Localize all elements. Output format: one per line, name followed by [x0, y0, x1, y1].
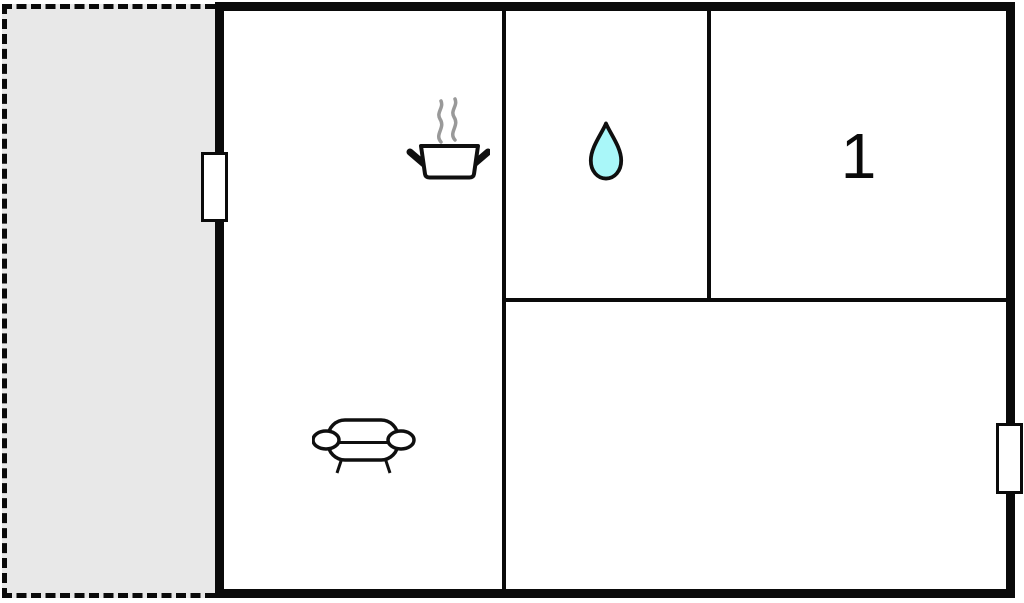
terrace-area: [2, 4, 215, 598]
steam-line-left: [439, 101, 442, 142]
water-drop-shape: [591, 123, 621, 178]
window-right-wall: [996, 423, 1023, 494]
sofa-armrest-left: [313, 431, 339, 449]
bedroom-number-label: 1: [841, 124, 877, 188]
water-drop-icon: [587, 120, 625, 182]
room-bottom-right: [506, 302, 1006, 589]
floor-plan: 1: [0, 0, 1024, 603]
window-left-wall: [201, 152, 228, 222]
sofa-icon: [312, 414, 416, 476]
room-bedroom-1: 1: [711, 11, 1006, 298]
cooking-pot-icon: [400, 95, 490, 185]
pot-body: [421, 146, 478, 178]
sofa-armrest-right: [388, 431, 414, 449]
steam-line-right: [453, 99, 456, 140]
